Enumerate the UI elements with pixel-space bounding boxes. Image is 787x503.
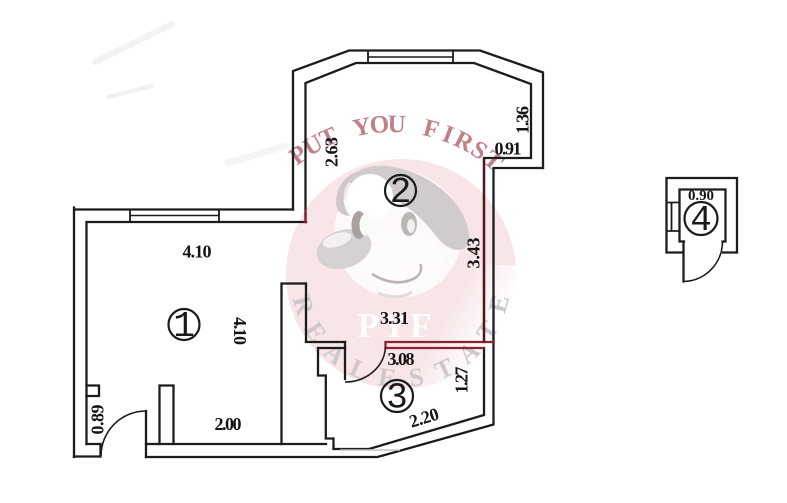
svg-text:3.43: 3.43 <box>464 238 484 269</box>
svg-text:4: 4 <box>690 200 712 241</box>
svg-text:1.36: 1.36 <box>513 106 533 134</box>
svg-text:4.10: 4.10 <box>230 317 250 345</box>
svg-text:1.27: 1.27 <box>452 367 472 394</box>
svg-text:4.10: 4.10 <box>183 242 212 262</box>
svg-text:0.91: 0.91 <box>495 139 522 159</box>
svg-text:2.63: 2.63 <box>322 137 342 167</box>
svg-text:3.08: 3.08 <box>388 349 415 369</box>
svg-text:U: U <box>387 111 406 139</box>
svg-text:0.89: 0.89 <box>88 405 108 435</box>
svg-text:1: 1 <box>173 306 195 347</box>
svg-text:3: 3 <box>386 377 408 418</box>
svg-text:2.00: 2.00 <box>215 414 242 434</box>
svg-text:2: 2 <box>390 172 412 213</box>
svg-text:3.31: 3.31 <box>380 308 409 328</box>
